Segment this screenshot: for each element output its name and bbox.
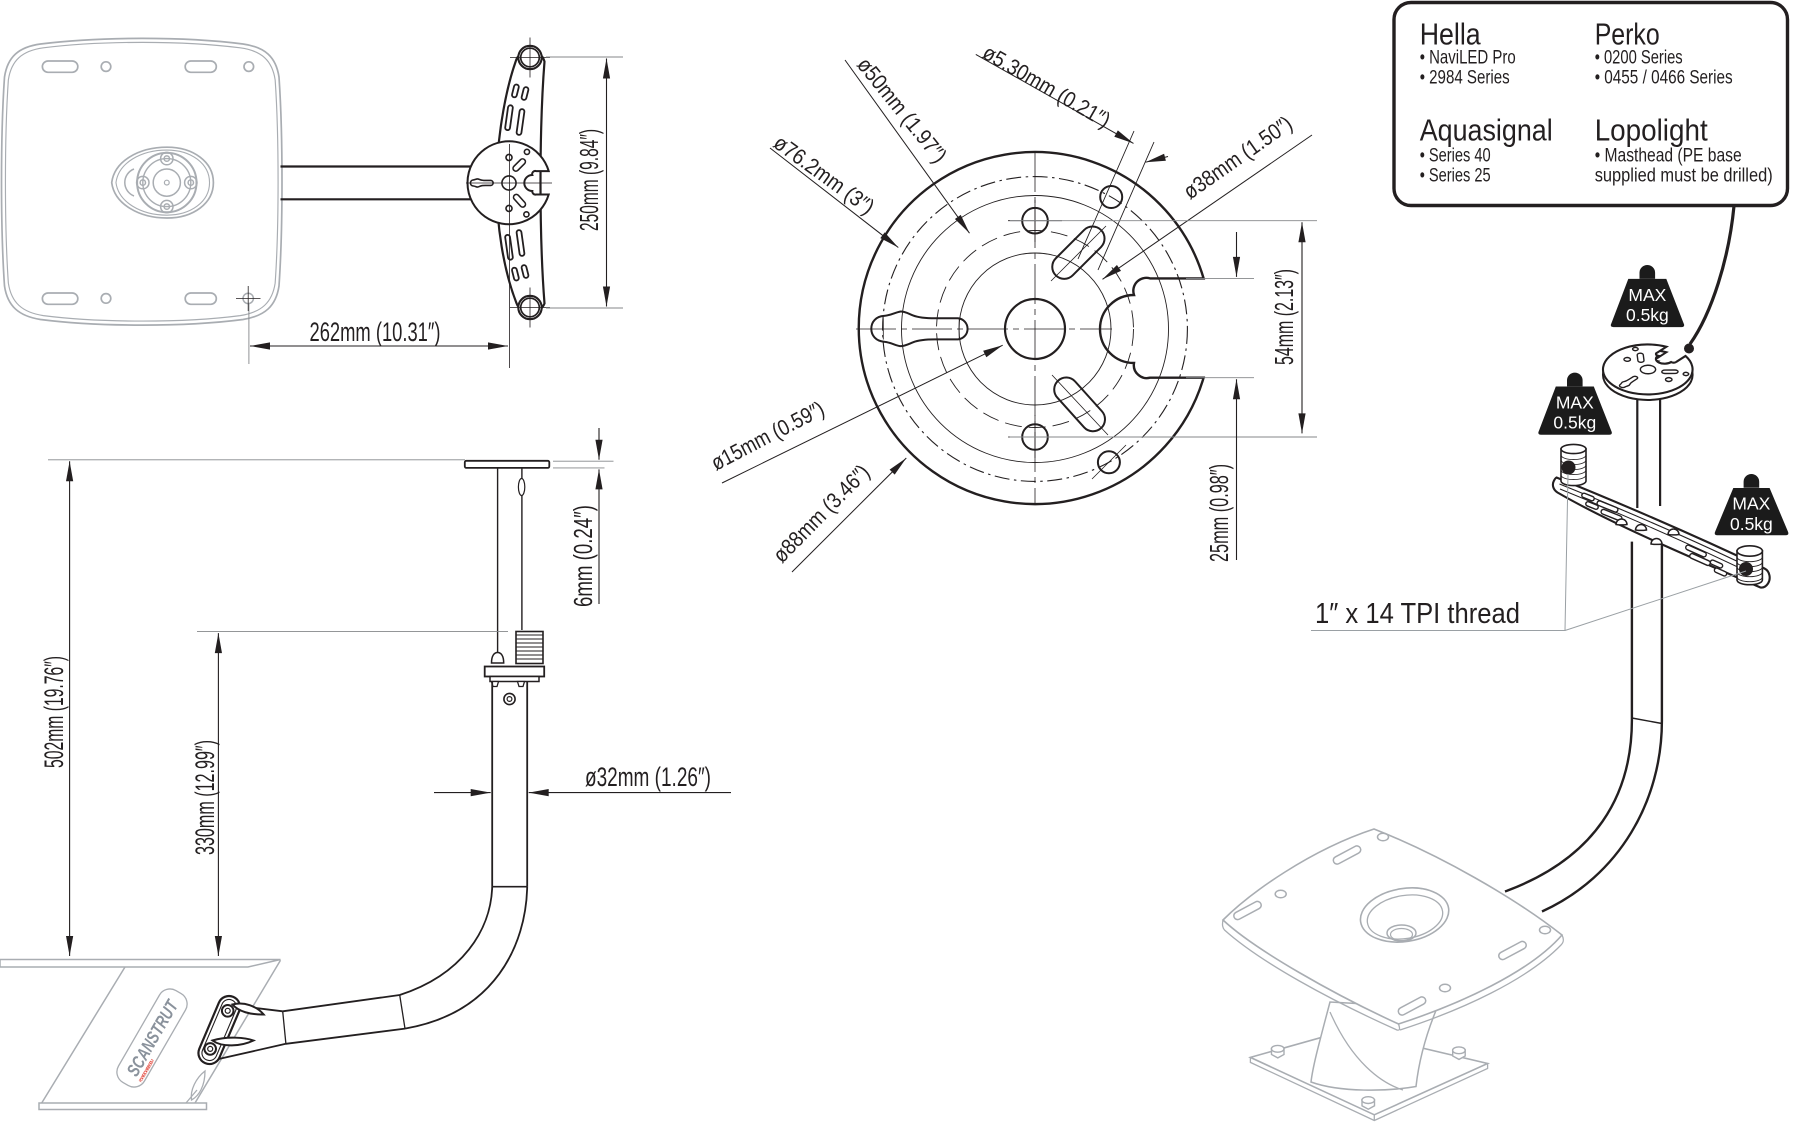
svg-text:ø50mm (1.97″): ø50mm (1.97″) (852, 52, 952, 167)
svg-text:502mm (19.76″): 502mm (19.76″) (39, 656, 69, 768)
svg-text:• NaviLED Pro: • NaviLED Pro (1420, 48, 1516, 69)
svg-text:250mm (9.84″): 250mm (9.84″) (574, 129, 604, 231)
svg-text:• 2984 Series: • 2984 Series (1420, 68, 1510, 89)
svg-text:0.5kg: 0.5kg (1553, 413, 1596, 433)
svg-text:0.5kg: 0.5kg (1730, 514, 1773, 534)
svg-text:Hella: Hella (1420, 16, 1482, 51)
svg-text:1″ x 14 TPI thread: 1″ x 14 TPI thread (1315, 598, 1520, 630)
svg-text:MAX: MAX (1732, 494, 1770, 514)
svg-text:25mm (0.98″): 25mm (0.98″) (1204, 464, 1234, 562)
svg-text:MAX: MAX (1628, 285, 1666, 305)
svg-text:MAX: MAX (1556, 393, 1594, 413)
svg-text:• 0455 / 0466 Series: • 0455 / 0466 Series (1595, 68, 1733, 89)
svg-text:54mm (2.13″): 54mm (2.13″) (1269, 269, 1299, 365)
svg-text:0.5kg: 0.5kg (1626, 305, 1669, 325)
svg-text:ø76.2mm (3″): ø76.2mm (3″) (769, 130, 879, 220)
svg-text:• Series 40: • Series 40 (1420, 146, 1491, 167)
svg-text:6mm (0.24″): 6mm (0.24″) (568, 505, 598, 607)
svg-text:ø5.30mm (0.21″): ø5.30mm (0.21″) (979, 40, 1115, 133)
svg-text:262mm (10.31″): 262mm (10.31″) (310, 317, 441, 347)
svg-text:• Masthead (PE base: • Masthead (PE base (1595, 146, 1742, 167)
svg-text:• Series 25: • Series 25 (1420, 166, 1491, 187)
svg-text:Perko: Perko (1595, 16, 1660, 51)
svg-text:Aquasignal: Aquasignal (1420, 113, 1553, 148)
svg-text:ø88mm (3.46″): ø88mm (3.46″) (768, 459, 875, 567)
svg-text:330mm (12.99″): 330mm (12.99″) (190, 740, 220, 855)
svg-text:ø32mm (1.26″): ø32mm (1.26″) (585, 762, 711, 792)
svg-text:ø15mm (0.59″): ø15mm (0.59″) (707, 396, 829, 475)
svg-text:Lopolight: Lopolight (1595, 113, 1708, 148)
svg-text:• 0200 Series: • 0200 Series (1595, 48, 1683, 69)
svg-text:supplied must be drilled): supplied must be drilled) (1595, 166, 1773, 187)
